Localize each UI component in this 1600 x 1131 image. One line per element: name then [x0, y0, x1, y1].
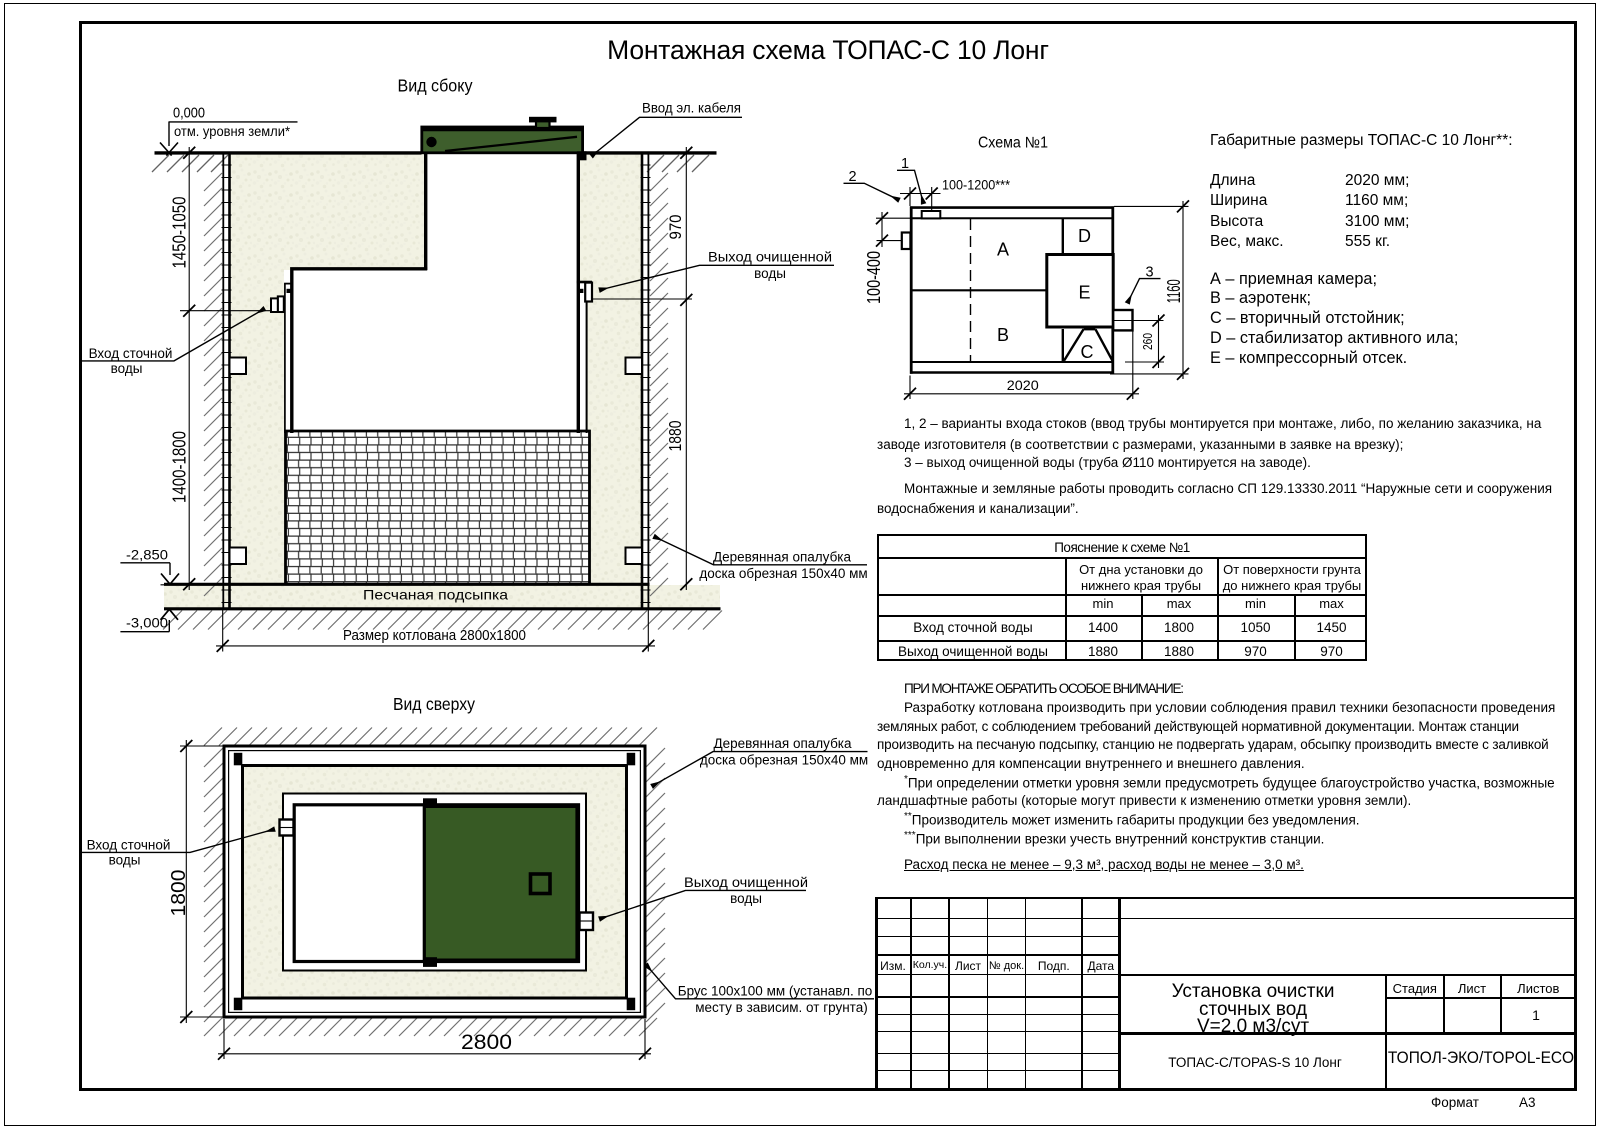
svg-text:0,000: 0,000	[173, 105, 205, 122]
svg-text:Песчаная подсыпка: Песчаная подсыпка	[363, 587, 508, 603]
svg-text:C: C	[1081, 342, 1094, 362]
svg-text:1800: 1800	[168, 870, 190, 917]
svg-text:Вид сверху: Вид сверху	[393, 694, 475, 714]
svg-text:2800: 2800	[461, 1030, 512, 1054]
svg-text:1400-1800: 1400-1800	[169, 431, 190, 503]
svg-text:1: 1	[901, 156, 909, 172]
svg-text:воды: воды	[111, 361, 143, 376]
svg-text:-3,000: -3,000	[126, 615, 168, 631]
svg-text:Размер котлована 2800х1800: Размер котлована 2800х1800	[343, 628, 526, 644]
svg-text:100-400: 100-400	[864, 251, 884, 304]
svg-text:Вид сбоку: Вид сбоку	[398, 76, 473, 96]
svg-text:Деревянная опалубка: Деревянная опалубка	[713, 550, 852, 565]
svg-text:100-1200***: 100-1200***	[942, 178, 1011, 193]
svg-text:доска обрезная 150х40 мм: доска обрезная 150х40 мм	[700, 753, 868, 768]
svg-text:Вход сточной: Вход сточной	[87, 838, 171, 853]
svg-text:воды: воды	[730, 891, 762, 906]
svg-text:970: 970	[667, 215, 685, 240]
svg-text:доска обрезная 150х40 мм: доска обрезная 150х40 мм	[699, 566, 867, 581]
svg-text:воды: воды	[754, 266, 786, 281]
svg-text:воды: воды	[109, 853, 141, 868]
svg-text:260: 260	[1141, 333, 1155, 350]
svg-text:Вход сточной: Вход сточной	[89, 346, 173, 361]
svg-text:Ввод эл. кабеля: Ввод эл. кабеля	[642, 101, 741, 116]
svg-text:D: D	[1078, 226, 1091, 246]
svg-text:-2,850: -2,850	[126, 547, 168, 563]
svg-text:B: B	[997, 325, 1009, 345]
svg-text:Выход очищенной: Выход очищенной	[708, 250, 832, 265]
svg-text:E: E	[1078, 283, 1090, 303]
svg-text:Деревянная опалубка: Деревянная опалубка	[713, 736, 852, 751]
svg-text:1450-1050: 1450-1050	[169, 197, 190, 269]
svg-text:1880: 1880	[665, 420, 685, 451]
svg-text:2: 2	[848, 169, 856, 185]
svg-text:2020: 2020	[1007, 377, 1039, 393]
svg-text:1160: 1160	[1163, 279, 1184, 303]
svg-text:Схема №1: Схема №1	[978, 135, 1048, 152]
svg-text:3: 3	[1145, 265, 1153, 281]
svg-text:A: A	[997, 240, 1009, 260]
svg-text:Выход очищенной: Выход очищенной	[684, 875, 808, 890]
svg-text:отм. уровня земли*: отм. уровня земли*	[174, 124, 291, 139]
svg-text:месту в зависим. от грунта): месту в зависим. от грунта)	[695, 1000, 867, 1015]
svg-text:Брус 100х100 мм (устанавл. по: Брус 100х100 мм (устанавл. по	[678, 984, 873, 999]
